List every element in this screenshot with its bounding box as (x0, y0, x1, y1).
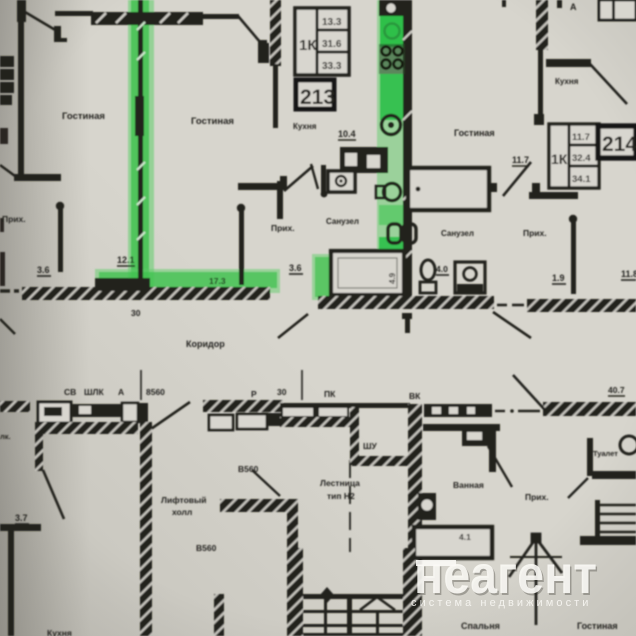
svg-text:Ванная: Ванная (453, 480, 484, 490)
svg-text:3.6: 3.6 (37, 265, 50, 275)
svg-text:Санузел: Санузел (326, 217, 359, 226)
svg-text:10.4: 10.4 (338, 129, 356, 139)
svg-text:неагент: неагент (414, 545, 597, 605)
svg-text:Гостиная: Гостиная (62, 111, 105, 122)
svg-text:3.7: 3.7 (15, 513, 28, 523)
svg-text:17.3: 17.3 (209, 276, 226, 286)
svg-text:30: 30 (131, 308, 141, 318)
svg-text:лк.: лк. (0, 432, 11, 441)
svg-text:Санузел: Санузел (441, 229, 474, 238)
svg-text:31.6: 31.6 (322, 39, 342, 50)
svg-text:213: 213 (300, 86, 335, 109)
svg-text:1К: 1К (299, 37, 317, 54)
svg-text:Гостиная: Гостиная (191, 116, 234, 127)
svg-text:Гостиная: Гостиная (454, 128, 495, 138)
svg-text:Туалет: Туалет (593, 449, 618, 458)
svg-text:А: А (570, 2, 577, 12)
svg-text:Прих.: Прих. (525, 492, 549, 502)
svg-text:30: 30 (277, 387, 287, 397)
svg-text:В560: В560 (196, 543, 217, 553)
svg-text:4.0: 4.0 (436, 264, 448, 274)
svg-text:Спальня: Спальня (461, 621, 500, 631)
svg-text:СВ: СВ (64, 387, 76, 397)
svg-text:33.3: 33.3 (322, 61, 342, 72)
svg-text:тип Н2: тип Н2 (327, 491, 355, 501)
svg-text:11.8: 11.8 (621, 269, 636, 279)
svg-text:12.1: 12.1 (117, 255, 135, 265)
svg-text:8560: 8560 (146, 387, 165, 397)
svg-text:Кухня: Кухня (293, 122, 317, 131)
svg-text:Лифтовый: Лифтовый (161, 495, 206, 505)
svg-text:3.6: 3.6 (289, 263, 302, 273)
svg-text:1К: 1К (551, 151, 568, 167)
svg-text:4.9: 4.9 (388, 272, 397, 284)
svg-text:ШУ: ШУ (363, 441, 378, 451)
svg-text:34.1: 34.1 (572, 174, 591, 185)
svg-text:32.4: 32.4 (572, 153, 591, 164)
svg-text:ВК: ВК (409, 391, 421, 401)
svg-text:1.9: 1.9 (552, 273, 565, 283)
svg-text:система недвижимости: система недвижимости (411, 597, 591, 609)
svg-text:Р: Р (251, 389, 257, 399)
svg-text:Гостиная: Гостиная (577, 621, 618, 631)
svg-text:Прих.: Прих. (2, 214, 26, 224)
svg-text:11.7: 11.7 (572, 132, 590, 143)
svg-text:11.7: 11.7 (512, 155, 529, 165)
svg-text:холл: холл (172, 507, 192, 517)
svg-text:4.1: 4.1 (459, 532, 471, 542)
svg-text:Коридор: Коридор (186, 339, 225, 349)
svg-text:214: 214 (602, 133, 636, 156)
svg-text:Лестница: Лестница (320, 478, 360, 488)
svg-text:Кухня: Кухня (555, 77, 579, 86)
svg-text:ШЛК: ШЛК (84, 387, 105, 397)
svg-text:40.7: 40.7 (608, 385, 625, 395)
svg-text:В560: В560 (238, 464, 259, 474)
svg-text:ПК: ПК (324, 389, 336, 399)
svg-text:Прих.: Прих. (523, 228, 547, 238)
svg-text:Кухня: Кухня (47, 628, 72, 636)
svg-text:Прих.: Прих. (271, 223, 295, 233)
svg-text:А: А (118, 387, 124, 397)
svg-text:13.3: 13.3 (322, 17, 342, 28)
